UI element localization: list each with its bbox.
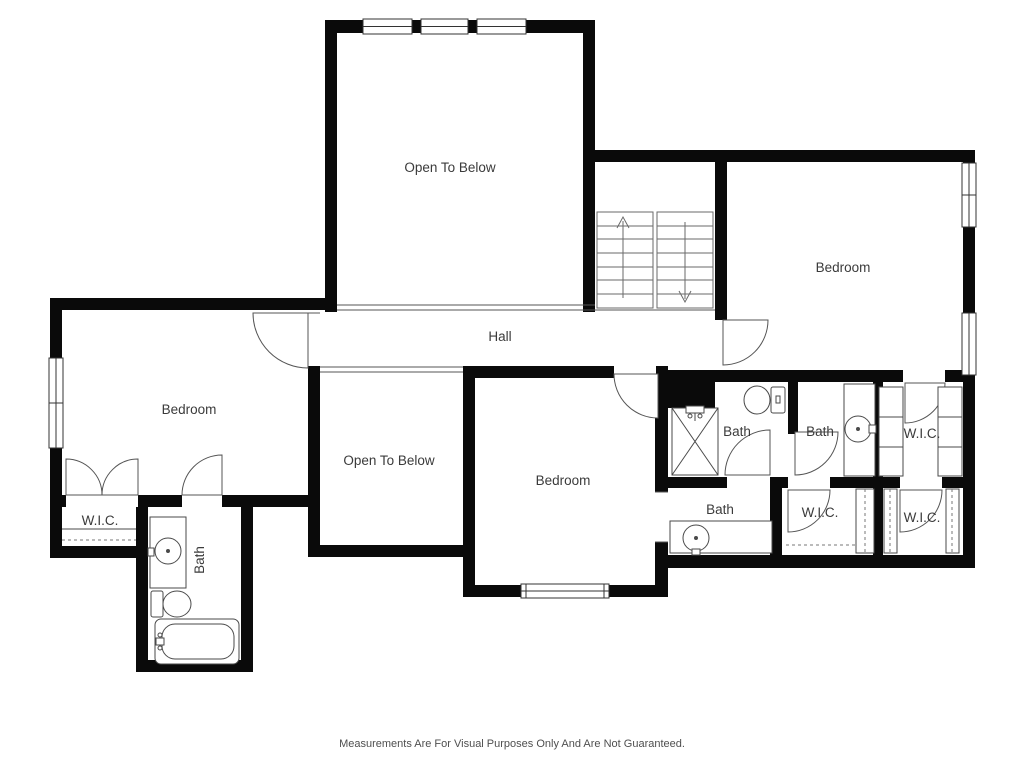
- door-french-right: [102, 459, 138, 495]
- door-left-bath: [182, 455, 222, 495]
- window: [421, 19, 468, 34]
- label-wic-3: W.I.C.: [904, 510, 941, 525]
- wall-segment: [463, 366, 475, 597]
- wall-segment: [715, 162, 727, 320]
- wall-segment: [222, 495, 320, 507]
- disclaimer-text: Measurements Are For Visual Purposes Onl…: [339, 738, 685, 750]
- wall-segment: [50, 298, 337, 310]
- window: [477, 19, 526, 34]
- wall-segment: [715, 150, 975, 162]
- wall-segment: [136, 507, 148, 672]
- label-bath-2: Bath: [806, 424, 834, 439]
- toilet-fixture: [151, 591, 191, 617]
- window: [962, 313, 976, 375]
- window: [521, 584, 609, 598]
- label-bath-1: Bath: [723, 424, 751, 439]
- label-bedroom-right: Bedroom: [816, 260, 871, 275]
- wall-segment: [942, 477, 975, 488]
- door-left-bedroom: [253, 313, 308, 368]
- sink-vanity-fixture: [844, 384, 876, 476]
- wall-segment: [463, 585, 521, 597]
- wall-segment: [50, 546, 148, 558]
- wall-segment: [770, 477, 788, 488]
- wall-segment: [463, 366, 614, 378]
- staircase: [597, 212, 713, 308]
- stair-treads: [597, 226, 713, 294]
- toilet-fixture: [744, 386, 785, 414]
- wall-segment: [830, 477, 900, 488]
- floor-plan-page: Open To Below Bedroom Hall Bedroom Open …: [0, 0, 1024, 768]
- wall-segment: [715, 370, 903, 382]
- label-bath-3: Bath: [706, 502, 734, 517]
- wall-segment: [50, 495, 66, 507]
- door-right-bedroom: [723, 320, 768, 365]
- wall-segment: [595, 150, 727, 162]
- label-open-to-below-top: Open To Below: [404, 160, 496, 175]
- label-bath-left: Bath: [192, 546, 207, 574]
- bathtub-fixture: [155, 619, 239, 664]
- label-bedroom-center: Bedroom: [536, 473, 591, 488]
- wall-segment: [609, 585, 668, 597]
- stair-down-arrow: [679, 222, 691, 302]
- door-center-bedroom: [614, 374, 658, 418]
- label-open-to-below-center: Open To Below: [343, 453, 435, 468]
- wall-segment: [325, 20, 337, 312]
- wall-segment: [241, 507, 253, 672]
- doors: [66, 313, 945, 532]
- door-french-left: [66, 459, 102, 495]
- label-wic-1: W.I.C.: [904, 426, 941, 441]
- window: [962, 163, 976, 227]
- sink-vanity-fixture: [148, 517, 186, 588]
- window: [49, 403, 63, 448]
- closet-rod: [62, 529, 136, 540]
- wall-segment: [138, 495, 182, 507]
- wall-segment: [788, 382, 798, 434]
- wall-segment: [308, 545, 475, 557]
- shower-fixture: [672, 406, 718, 475]
- floor-plan: Open To Below Bedroom Hall Bedroom Open …: [0, 0, 1024, 768]
- wall-segment: [655, 555, 975, 568]
- walls: [50, 20, 975, 672]
- label-wic-2: W.I.C.: [802, 505, 839, 520]
- stair-up-arrow: [617, 217, 629, 298]
- wall-segment: [308, 366, 320, 557]
- window: [49, 358, 63, 403]
- label-hall: Hall: [488, 329, 511, 344]
- wall-chase: [665, 370, 715, 408]
- wall-segment: [583, 20, 595, 312]
- sink-vanity-fixture: [670, 521, 772, 555]
- window: [363, 19, 412, 34]
- label-bedroom-left: Bedroom: [162, 402, 217, 417]
- label-wic-left: W.I.C.: [82, 513, 119, 528]
